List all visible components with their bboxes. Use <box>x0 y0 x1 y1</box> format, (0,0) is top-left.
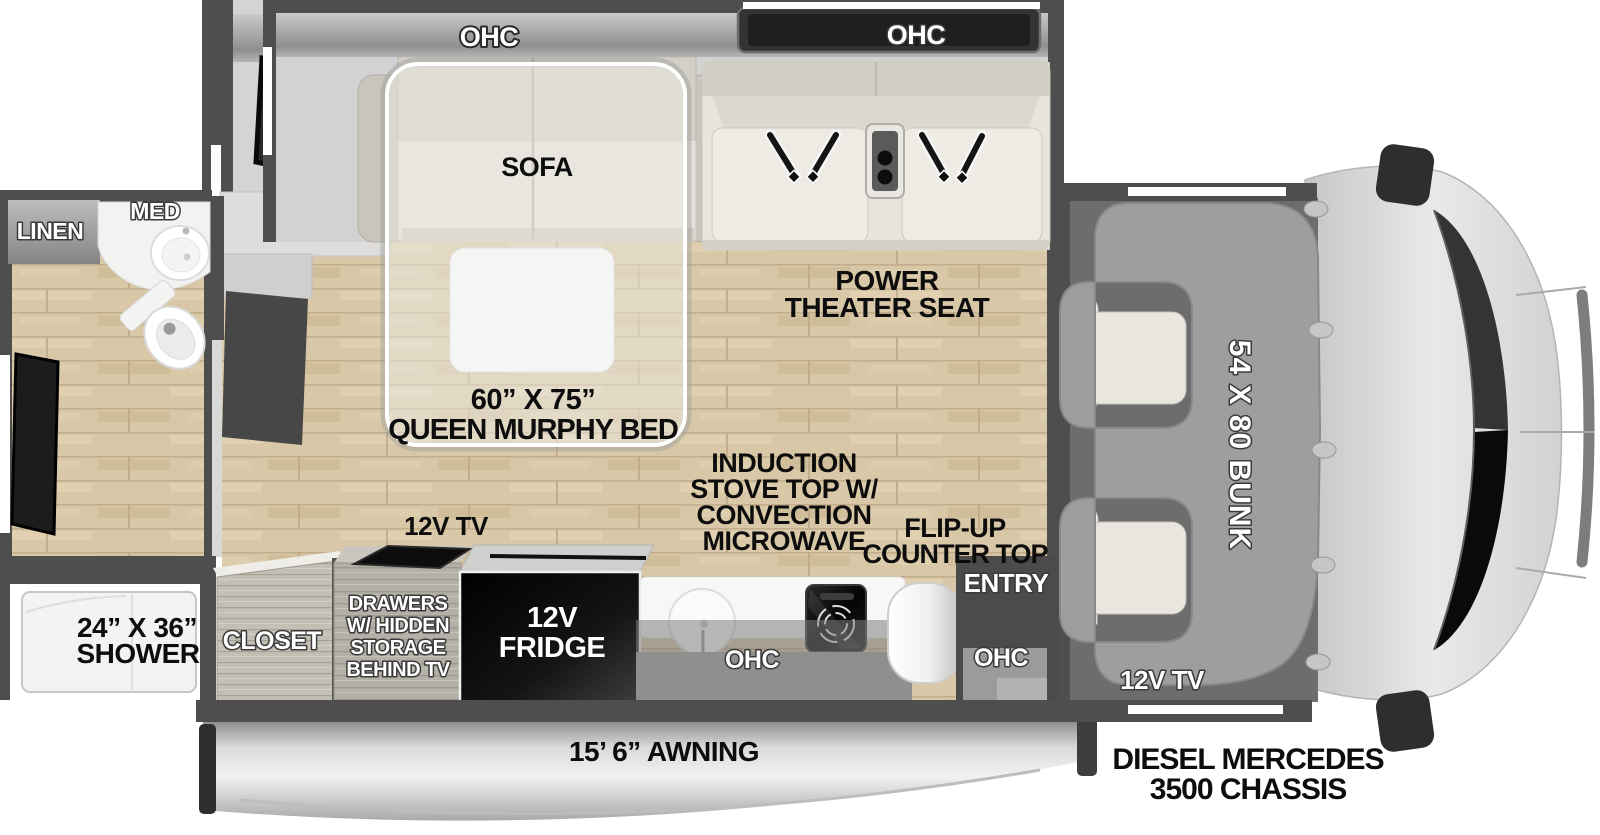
label-shower-name: SHOWER <box>77 638 200 669</box>
wardrobe-panel <box>222 291 308 445</box>
label-drawers-4: BEHIND TV <box>346 659 450 681</box>
label-induction-4: MICROWAVE <box>703 526 866 556</box>
slideout-window-slit <box>263 47 272 155</box>
label-bunk: 54 X 80 BUNK <box>1223 340 1256 550</box>
label-chassis-1: DIESEL MERCEDES <box>1112 743 1383 776</box>
theater-seats <box>702 62 1050 250</box>
cab-front <box>1305 143 1594 754</box>
rv-floorplan: OHC OHC SOFA 60” X 75” QUEEN MURPHY BED … <box>0 0 1600 835</box>
label-theater-2: THEATER SEAT <box>785 292 990 323</box>
label-cab-tv: 12V TV <box>1120 665 1205 695</box>
flipup-counter <box>888 583 962 683</box>
floorplan-canvas: OHC OHC SOFA 60” X 75” QUEEN MURPHY BED … <box>0 0 1600 835</box>
label-fridge-1: 12V <box>527 602 578 634</box>
bottom-window-slit <box>1128 705 1283 714</box>
label-sofa: SOFA <box>501 152 573 182</box>
label-entry: ENTRY <box>964 568 1049 598</box>
label-murphy-name: QUEEN MURPHY BED <box>388 414 678 446</box>
mirror-top-icon <box>1374 143 1436 208</box>
label-kitchen-tv: 12V TV <box>404 511 489 541</box>
label-med: MED <box>130 198 180 224</box>
front-bumper <box>1582 295 1589 562</box>
label-chassis-2: 3500 CHASSIS <box>1150 773 1346 806</box>
label-ohc-theater: OHC <box>887 20 946 50</box>
label-drawers-1: DRAWERS <box>349 593 448 615</box>
label-drawers-2: W/ HIDDEN <box>347 615 449 637</box>
label-ohc-kitchen: OHC <box>725 646 780 674</box>
cupholder-icon <box>878 170 893 185</box>
awning-arm-left <box>199 724 216 814</box>
label-closet: CLOSET <box>223 627 322 655</box>
label-ohc-sofa: OHC <box>460 22 519 52</box>
theater-window-slit <box>743 2 1040 9</box>
cupholder-console <box>866 124 904 198</box>
label-flipup-2: COUNTER TOP <box>862 539 1048 569</box>
awning <box>199 716 1097 821</box>
bathroom-tv-icon <box>12 354 58 534</box>
bathroom-window-slit <box>0 355 10 533</box>
label-fridge-2: FRIDGE <box>499 632 606 664</box>
cupholder-icon <box>878 151 893 166</box>
label-awning: 15’ 6” AWNING <box>569 736 759 767</box>
label-drawers-3: STORAGE <box>350 637 445 659</box>
murphy-mattress <box>450 248 614 372</box>
label-murphy-size: 60” X 75” <box>471 384 595 416</box>
label-linen: LINEN <box>17 218 84 244</box>
awning-arm-right <box>1077 716 1097 776</box>
front-window-slit <box>1128 187 1286 196</box>
label-ohc-entry: OHC <box>974 644 1029 672</box>
